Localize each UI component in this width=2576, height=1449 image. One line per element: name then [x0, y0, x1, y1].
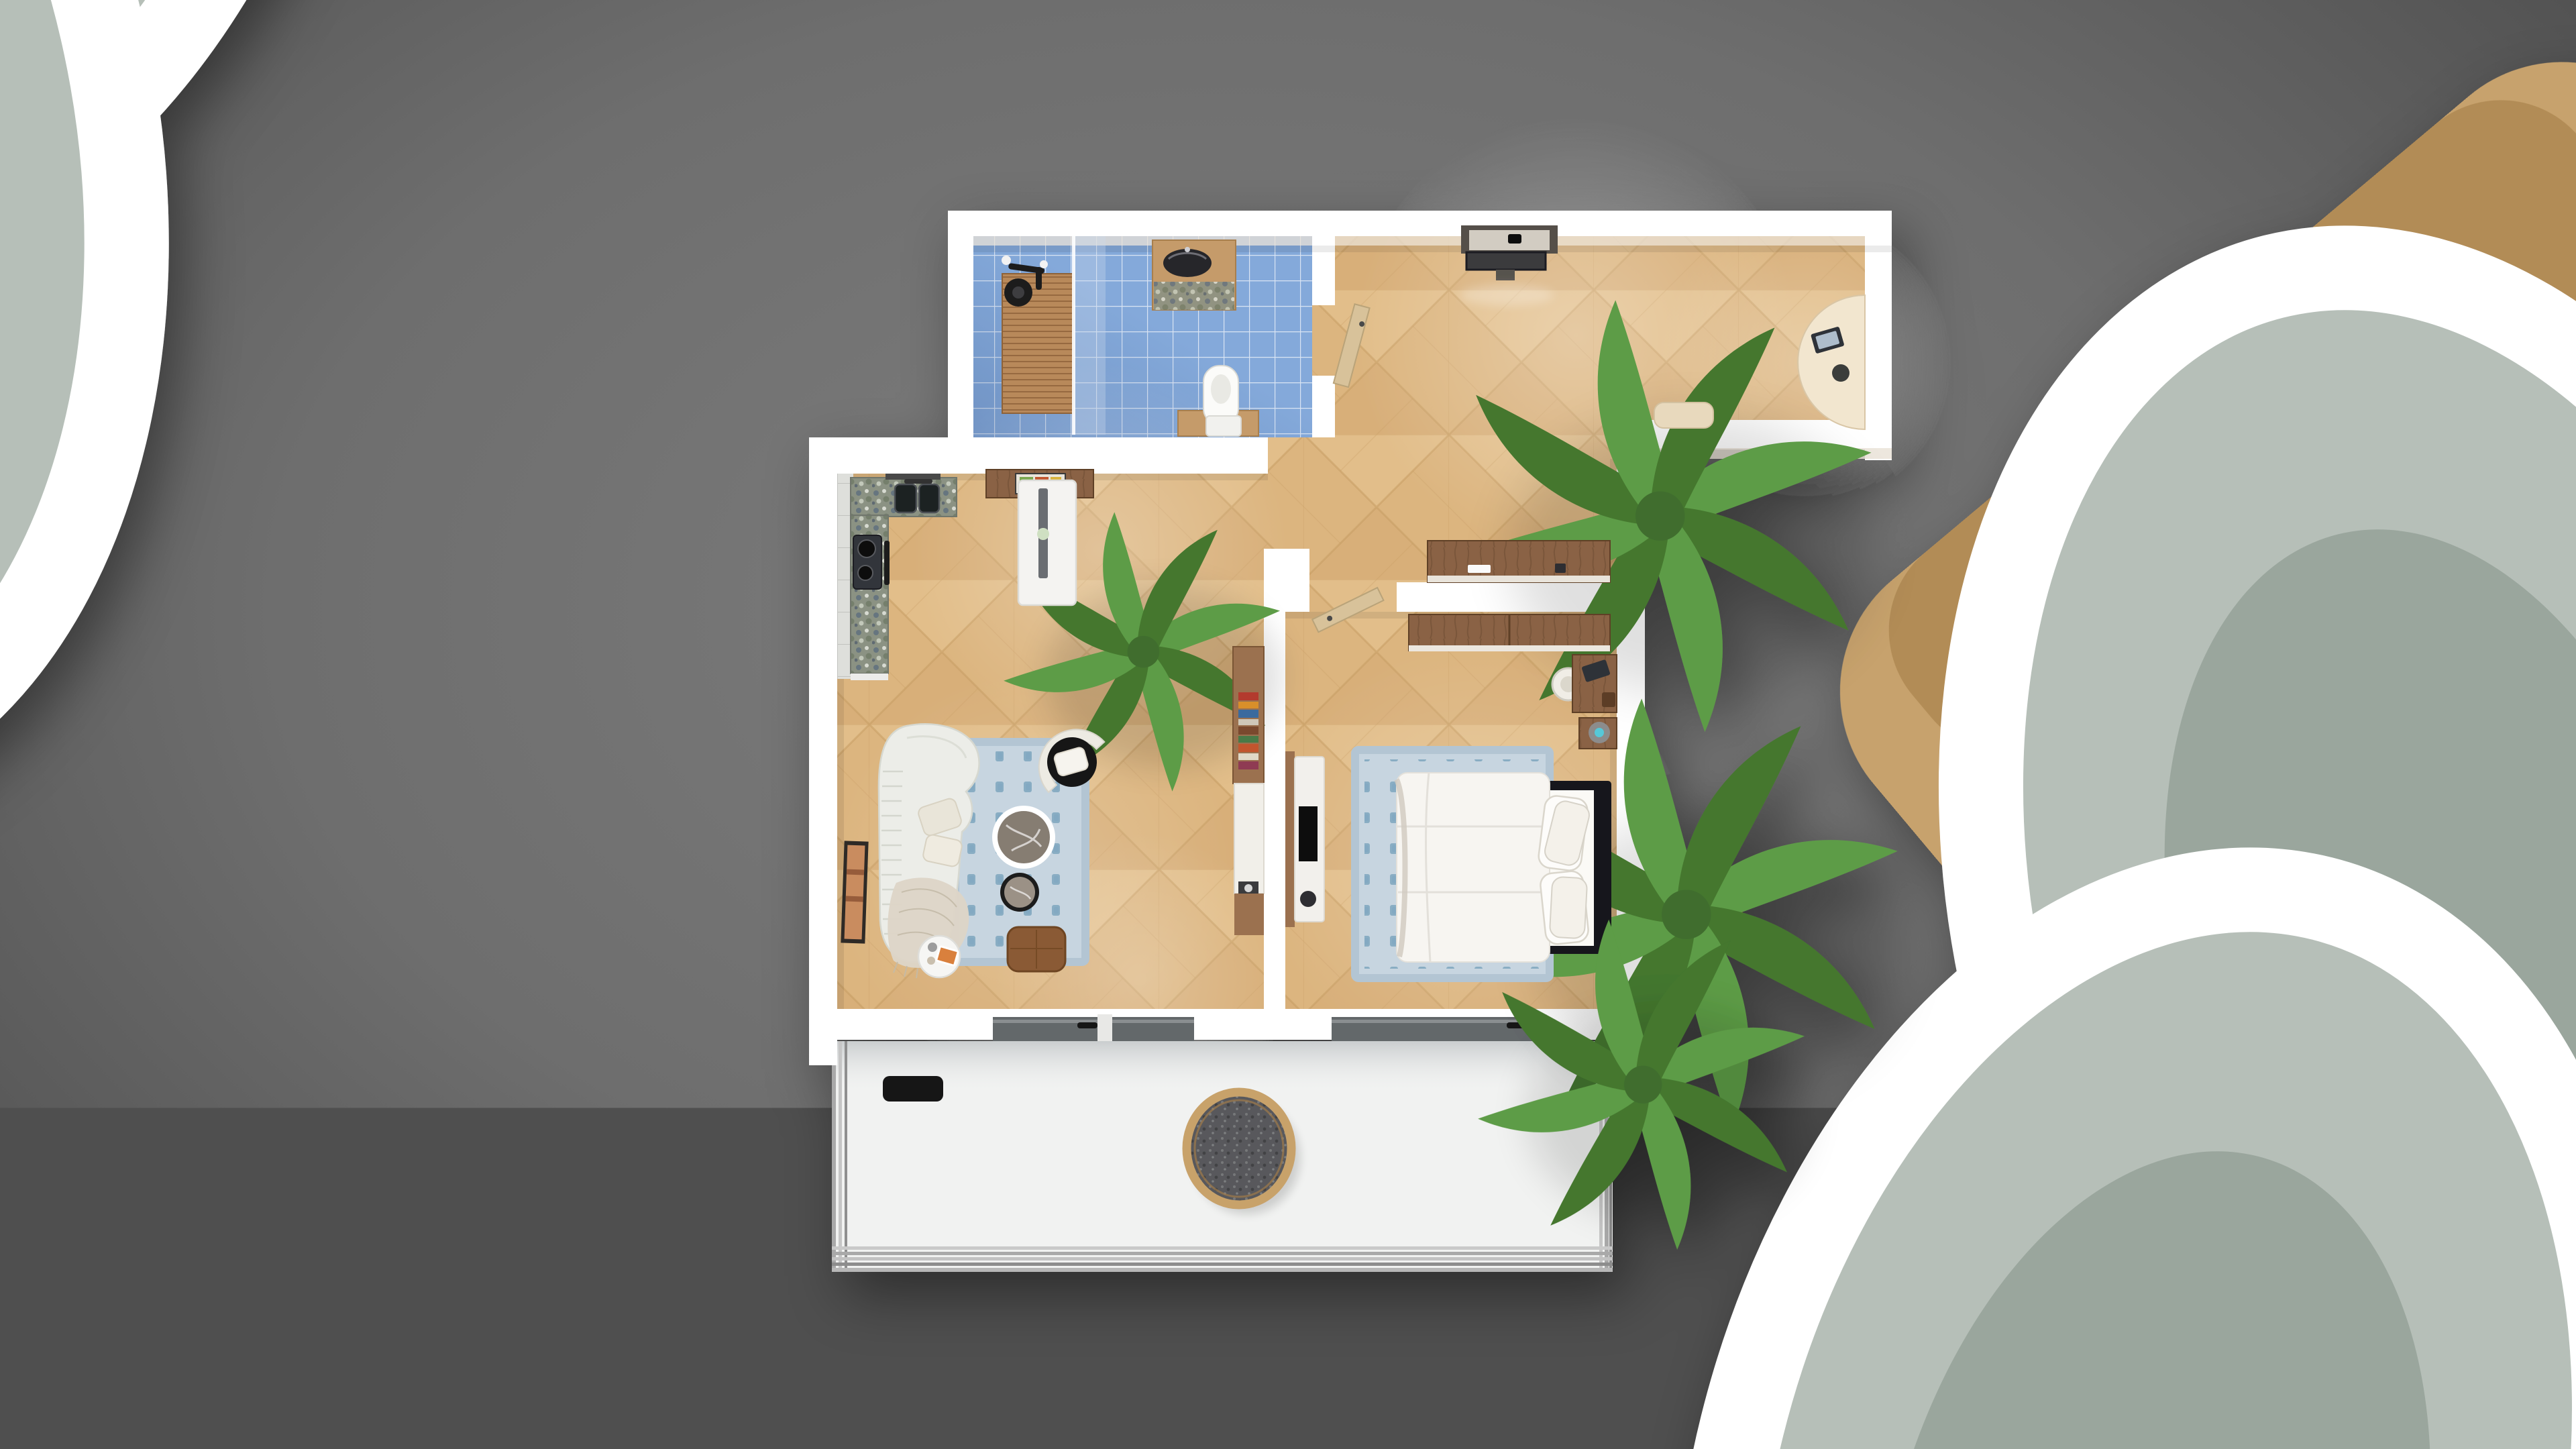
desk-plant-pot	[1832, 364, 1849, 382]
wall-bathroom-east-upper	[1312, 211, 1335, 305]
floor-plan	[0, 0, 2576, 1449]
wall-art	[841, 841, 868, 943]
books	[1238, 692, 1258, 769]
vanity-faucet	[1185, 247, 1190, 252]
wall-west	[809, 437, 837, 1065]
hall-stool	[1654, 402, 1713, 428]
nightstand	[1579, 718, 1617, 749]
tv-stand-plant-pot	[1300, 891, 1316, 907]
bed-duvet	[1397, 773, 1550, 962]
wall-north	[948, 211, 1892, 236]
kitchen-faucet	[904, 479, 932, 484]
coffee-table-small	[1000, 873, 1039, 912]
wardrobe	[1409, 614, 1610, 651]
toilet	[1203, 366, 1241, 436]
side-table	[918, 936, 960, 977]
dining-table	[1018, 480, 1076, 605]
kitchen-vent	[885, 474, 941, 480]
balcony-door-mat	[883, 1076, 943, 1102]
leather-pouf	[1008, 927, 1065, 971]
dining-chair	[0, 0, 241, 864]
window-bedroom	[1332, 1014, 1547, 1041]
shower-glass-panel	[1072, 236, 1106, 435]
media-console	[1234, 784, 1264, 935]
bedroom-tv	[1299, 806, 1318, 861]
bed	[1397, 773, 1611, 962]
hall-console	[1428, 541, 1610, 582]
shower-glass-frame	[1072, 236, 1075, 435]
wall-south-west-corner	[809, 1040, 837, 1065]
window-handle	[1077, 1022, 1097, 1028]
side-table-cup	[927, 957, 935, 965]
side-table-cup	[928, 943, 937, 952]
bedroom-desk	[1572, 655, 1617, 712]
wall-bathroom-south	[809, 437, 1268, 474]
coffee-table-large	[992, 806, 1055, 869]
table-centerpiece	[1037, 528, 1049, 540]
entry-door-handle	[1508, 234, 1521, 244]
window-living	[993, 1014, 1194, 1041]
building	[0, 0, 2576, 1449]
render-canvas	[0, 0, 2576, 1449]
wall-partition	[1264, 549, 1285, 1037]
entry-door	[1461, 225, 1558, 254]
kitchen-cabinet-end	[851, 674, 888, 680]
desk-box	[1602, 692, 1615, 707]
oven-handle	[884, 541, 890, 585]
balcony-table	[1187, 1092, 1300, 1214]
wall-bathroom-east-lower	[1312, 376, 1335, 437]
wall-bathroom-west	[948, 211, 973, 474]
